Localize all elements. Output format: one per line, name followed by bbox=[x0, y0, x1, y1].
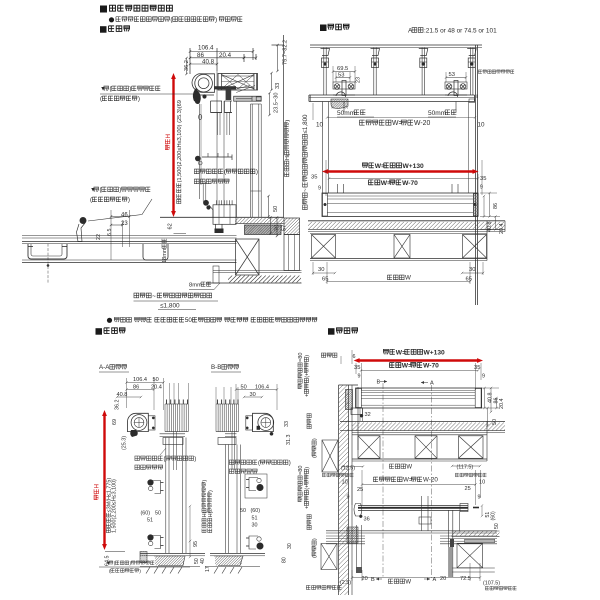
svg-text:B-B: B-B bbox=[211, 364, 221, 371]
svg-text:A-A: A-A bbox=[99, 364, 110, 371]
svg-text:W-20: W-20 bbox=[423, 477, 438, 484]
svg-text:10: 10 bbox=[478, 122, 486, 129]
svg-text:23.5~30: 23.5~30 bbox=[274, 93, 280, 113]
svg-text:80: 80 bbox=[281, 557, 287, 563]
svg-text:(25.3): (25.3) bbox=[122, 436, 128, 450]
svg-text:40.8: 40.8 bbox=[202, 59, 215, 66]
svg-text:86: 86 bbox=[493, 203, 499, 209]
svg-text:+: + bbox=[305, 394, 311, 397]
svg-text:50mm: 50mm bbox=[428, 110, 447, 117]
svg-text:36.2: 36.2 bbox=[184, 60, 190, 71]
svg-text:): ) bbox=[202, 480, 208, 482]
svg-text:(60): (60) bbox=[251, 508, 261, 514]
svg-text:30: 30 bbox=[318, 267, 324, 273]
svg-text:95: 95 bbox=[193, 541, 199, 547]
svg-text:H: H bbox=[95, 484, 101, 488]
svg-text:(: ( bbox=[164, 457, 166, 463]
svg-text:W+130: W+130 bbox=[403, 163, 425, 170]
svg-text:106.4: 106.4 bbox=[133, 377, 147, 383]
svg-text:≤1,800: ≤1,800 bbox=[302, 114, 309, 134]
svg-text:W-70: W-70 bbox=[402, 180, 418, 187]
svg-text:20.4: 20.4 bbox=[499, 399, 505, 410]
svg-text:): ) bbox=[312, 438, 318, 440]
svg-text:20: 20 bbox=[440, 576, 446, 582]
svg-text:35: 35 bbox=[311, 175, 317, 181]
svg-text:35: 35 bbox=[354, 365, 360, 371]
svg-text:): ) bbox=[256, 169, 258, 176]
svg-text:22: 22 bbox=[96, 234, 102, 240]
svg-text:~: ~ bbox=[302, 188, 309, 192]
svg-text:20.4: 20.4 bbox=[499, 224, 505, 235]
svg-text:36.2: 36.2 bbox=[115, 400, 121, 411]
svg-text:10: 10 bbox=[479, 480, 485, 486]
svg-text:): ) bbox=[215, 17, 217, 24]
svg-text:(+: (+ bbox=[305, 485, 311, 490]
svg-text:W-70: W-70 bbox=[423, 363, 439, 370]
svg-text:50: 50 bbox=[185, 317, 193, 324]
svg-text:9: 9 bbox=[358, 374, 361, 380]
svg-text:): ) bbox=[208, 490, 214, 492]
svg-text:36: 36 bbox=[364, 517, 370, 523]
svg-text:10: 10 bbox=[342, 480, 348, 486]
svg-text:23: 23 bbox=[121, 221, 128, 227]
svg-text:106.4: 106.4 bbox=[198, 45, 214, 52]
svg-text:≤1,800: ≤1,800 bbox=[160, 302, 180, 309]
svg-text::21.5 or 48 or 74.5 or 101: :21.5 or 48 or 74.5 or 101 bbox=[424, 27, 497, 34]
svg-text:W=: W= bbox=[392, 120, 402, 127]
svg-text:50: 50 bbox=[492, 419, 498, 425]
svg-text:W+130: W+130 bbox=[424, 349, 446, 356]
svg-text:9: 9 bbox=[318, 186, 321, 192]
svg-text:50: 50 bbox=[155, 511, 161, 517]
svg-text:8mm: 8mm bbox=[189, 282, 202, 288]
svg-text:9: 9 bbox=[347, 495, 350, 501]
svg-text:(: ( bbox=[312, 456, 318, 458]
svg-text:50: 50 bbox=[240, 508, 246, 514]
svg-text:(: ( bbox=[258, 461, 260, 467]
svg-text:1,500(2,200≤H≤3,100): 1,500(2,200≤H≤3,100) bbox=[112, 479, 118, 533]
svg-text:): ) bbox=[305, 355, 311, 357]
svg-text:50: 50 bbox=[273, 206, 279, 212]
svg-text:(+: (+ bbox=[305, 373, 311, 378]
svg-text:35: 35 bbox=[474, 365, 480, 371]
svg-text:B: B bbox=[371, 577, 375, 583]
svg-text:50mm: 50mm bbox=[337, 110, 356, 117]
svg-text:17: 17 bbox=[205, 566, 211, 572]
svg-text:20: 20 bbox=[362, 576, 368, 582]
svg-text:W: W bbox=[405, 275, 411, 282]
svg-text:6.5: 6.5 bbox=[107, 229, 113, 237]
svg-text:23: 23 bbox=[356, 77, 362, 83]
svg-text:(: ( bbox=[312, 556, 318, 558]
svg-text:25: 25 bbox=[357, 487, 363, 493]
svg-text:▼: ▼ bbox=[90, 187, 96, 194]
svg-text:B: B bbox=[377, 380, 381, 386]
svg-text:A: A bbox=[433, 577, 437, 583]
svg-text:69.5: 69.5 bbox=[337, 66, 348, 72]
svg-text:6: 6 bbox=[353, 354, 356, 360]
svg-text:(107.5): (107.5) bbox=[483, 581, 500, 587]
svg-text:): ) bbox=[138, 96, 140, 103]
svg-text:53: 53 bbox=[449, 72, 455, 78]
svg-text:(60): (60) bbox=[141, 511, 151, 517]
svg-text:W-20: W-20 bbox=[414, 120, 430, 127]
svg-text:(1,500(2,200≤H≤3,100) (25.3)(6: (1,500(2,200≤H≤3,100) (25.3)(69 bbox=[177, 100, 183, 182]
svg-text:+: + bbox=[305, 506, 311, 509]
svg-text:62: 62 bbox=[168, 223, 174, 229]
svg-text:30: 30 bbox=[287, 543, 293, 549]
svg-text:40.8: 40.8 bbox=[487, 222, 493, 233]
svg-text:=80: =80 bbox=[298, 465, 304, 475]
svg-text:46: 46 bbox=[121, 213, 128, 219]
svg-text:): ) bbox=[119, 187, 121, 194]
svg-text:): ) bbox=[194, 457, 196, 463]
svg-text:H: H bbox=[166, 134, 172, 138]
svg-text:30: 30 bbox=[252, 523, 258, 529]
svg-text:72.5: 72.5 bbox=[460, 576, 471, 582]
svg-text:50: 50 bbox=[494, 523, 500, 529]
svg-text:25: 25 bbox=[465, 486, 471, 492]
svg-text:32: 32 bbox=[365, 412, 371, 418]
svg-text:): ) bbox=[312, 538, 318, 540]
svg-text:W: W bbox=[406, 465, 412, 471]
svg-text:35: 35 bbox=[480, 176, 486, 182]
svg-text:▼: ▼ bbox=[100, 86, 106, 93]
svg-text:40: 40 bbox=[200, 558, 206, 564]
svg-text:(2.5): (2.5) bbox=[340, 580, 351, 586]
svg-text:): ) bbox=[128, 197, 130, 204]
svg-text:): ) bbox=[285, 120, 291, 122]
svg-text:A: A bbox=[430, 381, 434, 387]
svg-text:~: ~ bbox=[152, 293, 156, 300]
svg-text:31.3: 31.3 bbox=[286, 435, 292, 446]
svg-text:W: W bbox=[405, 580, 411, 586]
svg-text:33: 33 bbox=[284, 421, 290, 427]
svg-text:): ) bbox=[305, 467, 311, 469]
svg-text:9: 9 bbox=[478, 495, 481, 501]
svg-text:51: 51 bbox=[147, 518, 153, 524]
svg-text:): ) bbox=[289, 461, 291, 467]
svg-text:69: 69 bbox=[112, 419, 118, 425]
svg-text:33: 33 bbox=[275, 83, 281, 89]
svg-text:18mm: 18mm bbox=[162, 247, 168, 263]
svg-text:): ) bbox=[129, 86, 131, 93]
svg-text:9: 9 bbox=[482, 374, 485, 380]
svg-text:(117.5): (117.5) bbox=[457, 465, 474, 471]
svg-text:9: 9 bbox=[480, 185, 483, 191]
svg-text:(60): (60) bbox=[490, 511, 496, 520]
svg-text:50: 50 bbox=[153, 377, 159, 383]
svg-text:=80: =80 bbox=[298, 352, 304, 362]
svg-text:51: 51 bbox=[252, 516, 258, 522]
